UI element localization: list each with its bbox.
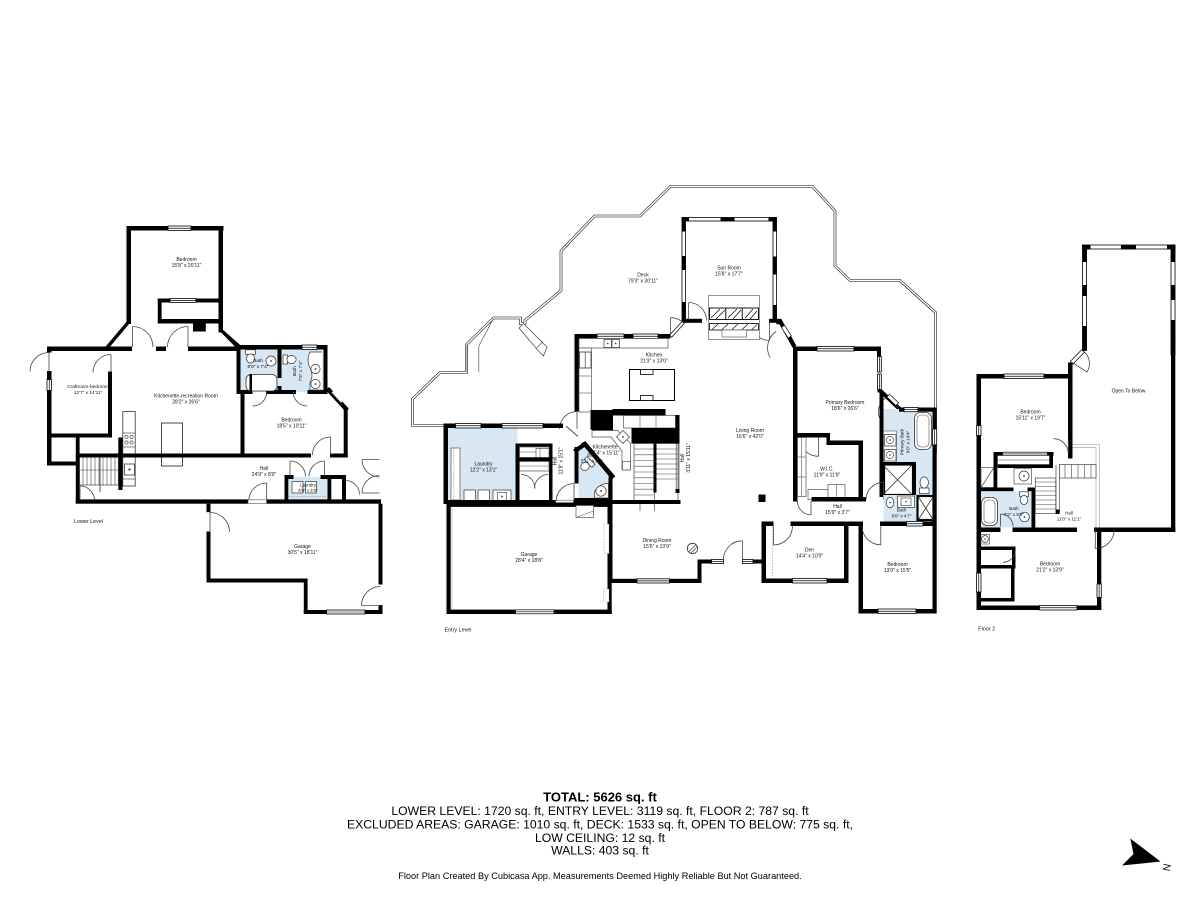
- svg-text:Living Room: Living Room: [736, 428, 764, 434]
- svg-text:18'5" x 10'11": 18'5" x 10'11": [277, 424, 307, 430]
- svg-text:Craftroom-bedroom: Craftroom-bedroom: [67, 384, 109, 390]
- svg-text:Garage: Garage: [521, 552, 538, 558]
- svg-text:30'5" x 18'11": 30'5" x 18'11": [288, 550, 318, 556]
- svg-text:15'11" x 19'7": 15'11" x 19'7": [1016, 416, 1046, 422]
- svg-text:11'9" x 15'1": 11'9" x 15'1": [559, 447, 565, 474]
- svg-text:11'9" x 11'6": 11'9" x 11'6": [814, 473, 841, 479]
- svg-text:7'9" x 7'4": 7'9" x 7'4": [298, 360, 304, 381]
- svg-text:EXCLUDED AREAS: GARAGE: 1010 s: EXCLUDED AREAS: GARAGE: 1010 sq. ft, DEC…: [347, 817, 853, 831]
- svg-text:Primary Bedroom: Primary Bedroom: [826, 400, 865, 406]
- svg-text:14'4" x 10'0": 14'4" x 10'0": [796, 554, 824, 560]
- svg-text:Sun Room: Sun Room: [717, 266, 741, 272]
- svg-text:Bath: Bath: [897, 508, 907, 513]
- svg-text:Hall: Hall: [1065, 511, 1073, 516]
- svg-text:11'0" x 11'1": 11'0" x 11'1": [1057, 516, 1082, 521]
- svg-text:Kitchen: Kitchen: [646, 353, 663, 359]
- svg-text:6'9" x 7'4": 6'9" x 7'4": [248, 364, 269, 370]
- svg-text:21'3" x 13'0": 21'3" x 13'0": [640, 359, 668, 365]
- svg-text:Floor 2: Floor 2: [978, 627, 995, 633]
- svg-text:18'6" x 26'6": 18'6" x 26'6": [831, 406, 859, 412]
- svg-text:Laundry: Laundry: [474, 462, 493, 468]
- svg-text:Deck: Deck: [637, 273, 649, 279]
- svg-text:12'2" x 13'1": 12'2" x 13'1": [470, 468, 498, 474]
- svg-text:Laundry: Laundry: [300, 483, 317, 488]
- svg-text:Primary Bath: Primary Bath: [900, 428, 905, 455]
- svg-text:Hall: Hall: [553, 457, 559, 466]
- svg-text:3'11" x 15'11": 3'11" x 15'11": [686, 443, 692, 473]
- svg-text:Kitchenette-recreation Room: Kitchenette-recreation Room: [154, 394, 218, 400]
- svg-text:Bedroom: Bedroom: [1040, 562, 1060, 568]
- svg-text:Bath: Bath: [292, 366, 298, 376]
- svg-text:15'6" x 13'9": 15'6" x 13'9": [643, 544, 671, 550]
- svg-text:W.I.C.: W.I.C.: [820, 467, 834, 473]
- svg-text:Bedroom: Bedroom: [176, 257, 196, 263]
- svg-text:Garage: Garage: [294, 544, 311, 550]
- svg-text:Lower Level: Lower Level: [74, 519, 103, 525]
- svg-text:Bedroom: Bedroom: [1020, 410, 1040, 416]
- svg-text:Bedroom: Bedroom: [887, 562, 907, 568]
- svg-text:15'8" x 17'7": 15'8" x 17'7": [715, 272, 743, 278]
- svg-text:16'6" x 42'0": 16'6" x 42'0": [736, 434, 764, 440]
- svg-text:WALLS: 403 sq. ft: WALLS: 403 sq. ft: [551, 844, 649, 858]
- svg-text:Open To Below: Open To Below: [1112, 389, 1146, 395]
- svg-text:LOWER LEVEL: 1720 sq. ft, ENTR: LOWER LEVEL: 1720 sq. ft, ENTRY LEVEL: 3…: [391, 804, 809, 818]
- svg-text:21'2" x 13'9": 21'2" x 13'9": [1036, 568, 1064, 574]
- svg-text:15'9" x 3'7": 15'9" x 3'7": [825, 510, 850, 516]
- svg-text:28'4" x 18'8": 28'4" x 18'8": [515, 558, 543, 564]
- svg-text:5'11" x 8'3": 5'11" x 8'3": [581, 458, 604, 463]
- svg-text:Floor Plan Created By Cubicasa: Floor Plan Created By Cubicasa App. Meas…: [398, 871, 801, 881]
- svg-text:Entry Level: Entry Level: [445, 628, 472, 634]
- svg-text:Hall: Hall: [680, 454, 686, 463]
- svg-text:12'7" x 14'11": 12'7" x 14'11": [74, 390, 103, 396]
- svg-text:Bath: Bath: [253, 358, 263, 364]
- svg-text:13'0" x 15'5": 13'0" x 15'5": [884, 568, 912, 574]
- svg-text:28'2" x 26'6": 28'2" x 26'6": [172, 400, 200, 406]
- svg-text:17'4" x 15'11": 17'4" x 15'11": [590, 451, 620, 457]
- svg-text:Kitchenette: Kitchenette: [592, 445, 617, 451]
- svg-text:Bath: Bath: [1009, 506, 1019, 511]
- svg-text:6'9" x 4'0": 6'9" x 4'0": [298, 488, 318, 493]
- svg-text:15'8" x 20'11": 15'8" x 20'11": [172, 263, 202, 269]
- svg-text:Den: Den: [805, 548, 814, 554]
- svg-text:9'0" x 4'7": 9'0" x 4'7": [891, 513, 911, 518]
- svg-text:TOTAL: 5626 sq. ft: TOTAL: 5626 sq. ft: [543, 789, 657, 804]
- svg-text:Bedroom: Bedroom: [281, 418, 301, 424]
- svg-text:Hall: Hall: [833, 504, 842, 510]
- svg-text:79'3" x 30'11": 79'3" x 30'11": [628, 279, 658, 285]
- svg-text:Hall: Hall: [260, 466, 269, 472]
- svg-text:9'0" x 14'4": 9'0" x 14'4": [905, 430, 910, 453]
- svg-text:24'9" x 8'0": 24'9" x 8'0": [252, 472, 277, 478]
- svg-text:Dining Room: Dining Room: [643, 538, 672, 544]
